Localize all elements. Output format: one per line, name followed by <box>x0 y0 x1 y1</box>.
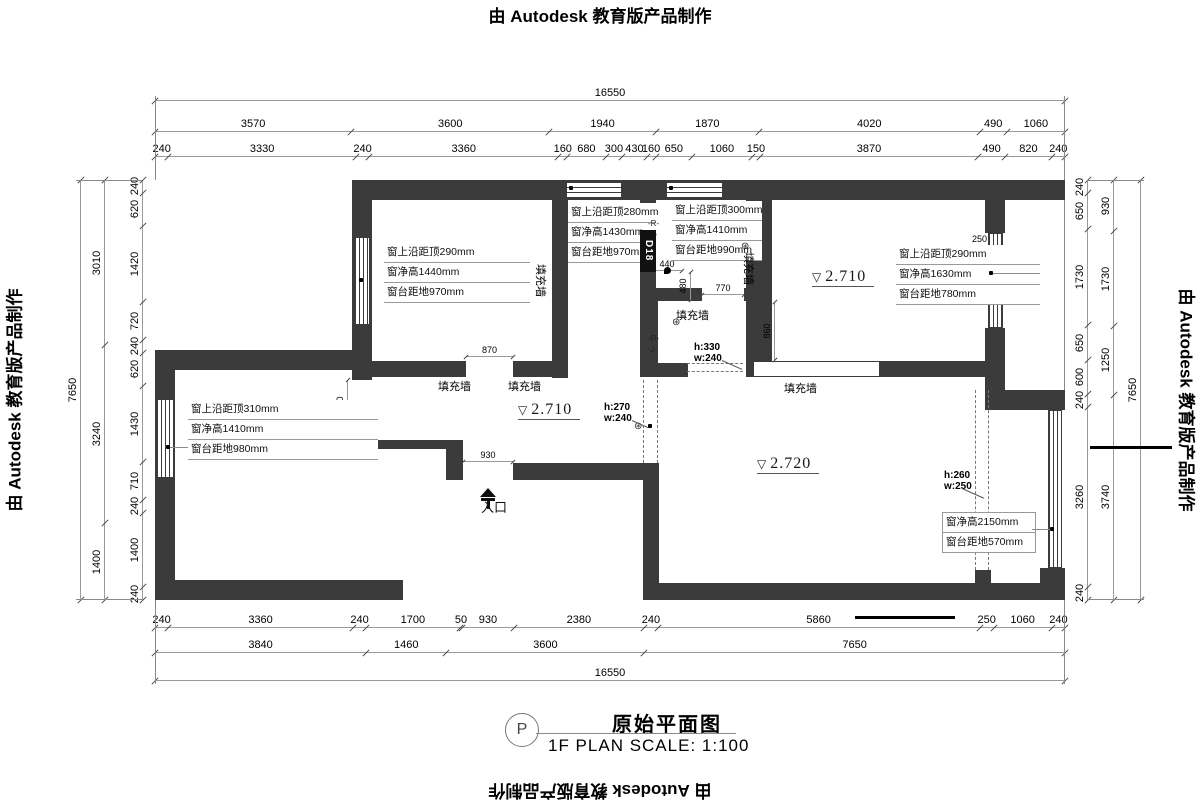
window <box>566 181 622 198</box>
dim-tick <box>139 298 146 305</box>
window-annotation-bottom-right: 窗净高2150mm 窗台距地570mm <box>942 512 1036 553</box>
dim-top-row2: 357036001940187040204901060 <box>155 131 1065 132</box>
dim-tick <box>1110 228 1117 235</box>
fill-wall-label-vertical: 填充墙 <box>533 264 549 297</box>
pipe-marker-r: -R- <box>648 334 659 343</box>
annotation-row: 窗台距地970mm <box>384 283 530 303</box>
dim-label: 5860 <box>806 614 830 626</box>
stray-wall-line <box>855 616 955 619</box>
dim-label: 1420 <box>129 251 141 275</box>
elevation-triangle-icon: ▽ <box>812 270 822 284</box>
wall <box>975 570 991 583</box>
wall <box>552 200 568 378</box>
dim-label: 3010 <box>91 250 103 274</box>
entrance-arrow-head <box>480 480 496 497</box>
dim-label: 240 <box>1074 391 1086 409</box>
pipe-marker-j: -J- <box>648 345 657 354</box>
fixture-symbol <box>664 267 671 274</box>
dim-label: 3840 <box>248 639 272 651</box>
extension-line <box>1064 600 1065 684</box>
dim-480: 480 <box>690 272 691 300</box>
dim-label: 1700 <box>401 614 425 626</box>
dim-entry-930: 930 <box>463 461 513 462</box>
wall <box>155 580 403 600</box>
wall <box>640 363 688 377</box>
extension-line <box>1064 96 1065 180</box>
dim-tick <box>1110 596 1117 603</box>
extension-line <box>1087 599 1144 600</box>
dim-tick <box>1084 226 1091 233</box>
dim-250-label: 250 <box>972 234 987 244</box>
annotation-row: 窗台距地980mm <box>188 440 378 460</box>
dim-label: 1730 <box>1074 265 1086 289</box>
dim-label: 1400 <box>91 549 103 573</box>
dim-label: 7650 <box>67 378 79 402</box>
annotation-row: 窗上沿距顶290mm <box>896 245 1040 265</box>
dim-label: 1060 <box>1010 614 1034 626</box>
dim-tick <box>1061 128 1068 135</box>
dim-tick <box>346 378 351 383</box>
dim-label: 3740 <box>1100 485 1112 509</box>
dim-tick <box>464 355 469 360</box>
dim-opening-870: 870 <box>466 356 513 357</box>
dim-tick <box>1061 649 1068 656</box>
opening-size-label: h:330w:240 <box>694 342 722 364</box>
window <box>1048 410 1062 568</box>
dim-bottom-row2: 3840146036007650 <box>155 652 1065 653</box>
plan-scale-label: 1F PLAN SCALE: 1:100 <box>548 736 749 756</box>
dashed-opening-line <box>657 380 658 463</box>
dim-left-inner: 240620142072024062014307102401400240 <box>142 180 143 600</box>
pipe-marker-r: -R- <box>648 219 659 228</box>
door-tag-d18: D18 <box>640 230 656 272</box>
dim-label: 3600 <box>533 639 557 651</box>
dim-tick <box>1061 97 1068 104</box>
dim-left-mid: 301032401400 <box>104 180 105 600</box>
dim-label: 240 <box>642 614 660 626</box>
autodesk-banner-right: 由 Autodesk 教育版产品制作 <box>1176 289 1200 512</box>
dashed-opening-line <box>643 380 644 463</box>
annotation-row: 窗净高2150mm <box>943 513 1035 533</box>
dim-tick <box>974 153 981 160</box>
fill-wall-label: 填充墙 <box>438 378 471 394</box>
opening-w: w:240 <box>604 413 632 424</box>
extension-line <box>1087 180 1144 181</box>
dim-label: 1940 <box>590 118 614 130</box>
dim-label: 930 <box>480 450 495 460</box>
dim-label: 480 <box>678 278 688 293</box>
opening-w: w:240 <box>694 353 722 364</box>
dim-tick <box>101 520 108 527</box>
dim-tick <box>443 649 450 656</box>
window <box>666 181 723 198</box>
title-underline <box>536 733 736 734</box>
dim-label: 1250 <box>1100 348 1112 372</box>
fill-wall-label: 填充墙 <box>508 378 541 394</box>
dim-label: 720 <box>129 312 141 330</box>
dim-label: 3330 <box>250 143 274 155</box>
dim-label: 1460 <box>394 639 418 651</box>
dim-tick <box>348 128 355 135</box>
dim-label: 650 <box>665 143 683 155</box>
window-annotation-top-right: 窗上沿距顶290mm 窗净高1630mm 窗台距地780mm <box>896 245 1040 305</box>
annotation-row: 窗台距地780mm <box>896 285 1040 305</box>
dim-label: 3870 <box>857 143 881 155</box>
dim-label: 16550 <box>595 87 626 99</box>
dim-right-mid: 930173012503740 <box>1113 180 1114 600</box>
leader-line <box>722 360 743 370</box>
dim-right-outer: 7650 <box>1140 180 1141 600</box>
annotation-row: 窗上沿距顶310mm <box>188 400 378 420</box>
extension-line <box>76 180 142 181</box>
dim-label: 930 <box>1100 196 1112 214</box>
dim-label: 1060 <box>1024 118 1048 130</box>
dim-tick <box>139 222 146 229</box>
dim-label: 680 <box>577 143 595 155</box>
window-annotation-bottom-left: 窗上沿距顶310mm 窗净高1410mm 窗台距地980mm <box>188 400 378 460</box>
dim-tick <box>1061 677 1068 684</box>
infill-wall <box>753 361 880 377</box>
window <box>156 399 174 478</box>
dim-label: 3600 <box>438 118 462 130</box>
opening-h: h:260 <box>944 470 970 481</box>
dim-label: 600 <box>1074 368 1086 386</box>
dim-tick <box>363 649 370 656</box>
elevation-triangle-icon: ▽ <box>518 403 528 417</box>
dim-tick <box>546 128 553 135</box>
window-dot <box>569 186 573 190</box>
dim-label: 650 <box>1074 202 1086 220</box>
dim-label: 240 <box>129 584 141 602</box>
opening-size-label: h:270w:240 <box>604 402 632 424</box>
leader-line <box>1032 529 1052 530</box>
dim-tick <box>510 624 517 631</box>
dim-tick <box>680 269 685 274</box>
dim-label: 770 <box>715 283 730 293</box>
wall <box>1005 390 1065 410</box>
elevation-triangle-icon: ▽ <box>757 457 767 471</box>
dim-label: 2380 <box>567 614 591 626</box>
annotation-row: 窗上沿距顶300mm <box>672 201 762 221</box>
dim-label: 820 <box>1019 143 1037 155</box>
dim-label: 250 <box>977 614 995 626</box>
dim-label: 3360 <box>248 614 272 626</box>
annotation-row: 窗净高1630mm <box>896 265 1040 285</box>
dim-label: 4020 <box>857 118 881 130</box>
dim-label: 240 <box>1074 177 1086 195</box>
dim-tick <box>1110 322 1117 329</box>
dim-tick <box>689 153 696 160</box>
annotation-row: 窗上沿距顶280mm <box>568 203 656 223</box>
dim-label: 240 <box>129 497 141 515</box>
annotation-row: 窗上沿距顶290mm <box>384 243 530 263</box>
dashed-opening-line <box>687 371 743 372</box>
dim-tick <box>641 649 648 656</box>
leader-line <box>962 488 984 499</box>
dim-left-outer: 7650 <box>80 180 81 600</box>
autodesk-banner-bottom: 由 Autodesk 教育版产品制作 <box>0 780 1200 805</box>
entrance-label: 入口 <box>481 497 507 516</box>
dim-tick <box>1002 153 1009 160</box>
extension-line <box>76 599 142 600</box>
dim-label: 1870 <box>695 118 719 130</box>
dim-label: 240 <box>353 143 371 155</box>
wall <box>513 463 645 480</box>
building-outline <box>1064 200 1065 390</box>
dim-label: 650 <box>1074 333 1086 351</box>
dim-label: 1400 <box>129 538 141 562</box>
dim-tick <box>101 596 108 603</box>
dim-tick <box>1137 596 1144 603</box>
dim-tick <box>689 270 694 275</box>
dim-tick <box>755 128 762 135</box>
dim-label: 16550 <box>595 667 626 679</box>
elevation-mark-top-right: ▽2.710 <box>812 268 874 287</box>
wall <box>372 440 448 449</box>
window-dot <box>669 186 673 190</box>
annotation-row: 窗净高1410mm <box>672 221 762 241</box>
dim-label: 3570 <box>241 118 265 130</box>
dim-tick <box>139 382 146 389</box>
wall <box>643 583 1065 600</box>
elevation-mark-bottom-right: ▽2.720 <box>757 455 819 474</box>
dim-opening-770: 770 <box>702 294 744 295</box>
dim-top-row3: 2403330240336016068030043016065010601503… <box>155 156 1065 157</box>
dim-label: 240 <box>350 614 368 626</box>
dim-tick <box>1003 128 1010 135</box>
window-annotation-top-left: 窗上沿距顶290mm 窗净高1440mm 窗台距地970mm <box>384 243 530 303</box>
opening-size-label: h:260w:250 <box>944 470 972 492</box>
window-dot <box>359 278 363 282</box>
dim-label: 620 <box>129 200 141 218</box>
dim-label: 1730 <box>1100 266 1112 290</box>
dim-label: 490 <box>982 143 1000 155</box>
dim-label: 1060 <box>710 143 734 155</box>
wall <box>513 361 552 377</box>
autodesk-banner-left: 由 Autodesk 教育版产品制作 <box>1 289 26 512</box>
dim-tick <box>77 596 84 603</box>
annotation-row: 窗净高1440mm <box>384 263 530 283</box>
dim-top-overall: 16550 <box>155 100 1065 101</box>
circled-star-symbol: ⊛ <box>741 241 749 252</box>
dim-label: 710 <box>129 472 141 490</box>
wall <box>446 440 463 480</box>
leader-line <box>170 447 188 448</box>
dim-bottom-row1: 2403360240170050930238024058602501060240 <box>155 627 1065 628</box>
stray-wall-line <box>1090 446 1172 449</box>
elevation-mark-hall: ▽2.710 <box>518 401 580 420</box>
fill-wall-label: 填充墙 <box>784 380 817 396</box>
dim-label: 3360 <box>452 143 476 155</box>
dim-tick <box>1084 357 1091 364</box>
plan-number-bubble: P <box>505 713 539 747</box>
elevation-value: 2.720 <box>770 455 811 472</box>
annotation-row: 窗净高1410mm <box>188 420 378 440</box>
dim-bottom-overall: 16550 <box>155 680 1065 681</box>
leader-dot <box>648 424 652 428</box>
elevation-value: 2.710 <box>531 401 572 418</box>
dim-tick <box>976 128 983 135</box>
leader-dot <box>166 445 170 449</box>
wall <box>643 463 659 600</box>
dim-tick <box>511 355 516 360</box>
dim-tick <box>1084 321 1091 328</box>
dim-label: 300 <box>605 143 623 155</box>
opening-h: h:330 <box>694 342 720 353</box>
dim-label: 240 <box>1074 584 1086 602</box>
wall <box>155 350 372 370</box>
dim-label: 870 <box>482 345 497 355</box>
fill-wall-label: 填充墙 <box>676 307 709 323</box>
circled-star-symbol: ⊛ <box>672 317 680 328</box>
dim-label: 7650 <box>842 639 866 651</box>
leader-dot <box>1050 527 1054 531</box>
dim-tick <box>652 128 659 135</box>
wall <box>985 200 1005 233</box>
dim-label: 3260 <box>1074 485 1086 509</box>
dim-label: 620 <box>129 360 141 378</box>
autodesk-banner-top: 由 Autodesk 教育版产品制作 <box>0 2 1200 27</box>
wall <box>372 361 466 377</box>
leader-dot <box>989 271 993 275</box>
wall <box>880 361 992 377</box>
wall <box>744 288 772 301</box>
leader-line <box>991 273 1040 274</box>
fill-wall-label-vertical: 填充墙 <box>741 252 757 285</box>
extension-line <box>155 600 156 684</box>
dim-tick <box>773 300 778 305</box>
dim-label: 3240 <box>91 422 103 446</box>
dim-label: 1430 <box>129 412 141 436</box>
extension-line <box>155 96 156 180</box>
dim-label: 930 <box>479 614 497 626</box>
dim-tick <box>101 342 108 349</box>
dim-tick <box>139 458 146 465</box>
annotation-row: 窗台距地570mm <box>943 533 1035 552</box>
elevation-value: 2.710 <box>825 268 866 285</box>
dim-label: 860 <box>762 323 772 338</box>
dim-label: 490 <box>984 118 1002 130</box>
dim-label: 7650 <box>1127 378 1139 402</box>
dim-label: 240 <box>129 337 141 355</box>
dim-tick <box>1110 391 1117 398</box>
opening-h: h:270 <box>604 402 630 413</box>
dim-860: 860 <box>774 302 775 360</box>
dim-right-inner: 24065017306506002403260240 <box>1087 180 1088 600</box>
